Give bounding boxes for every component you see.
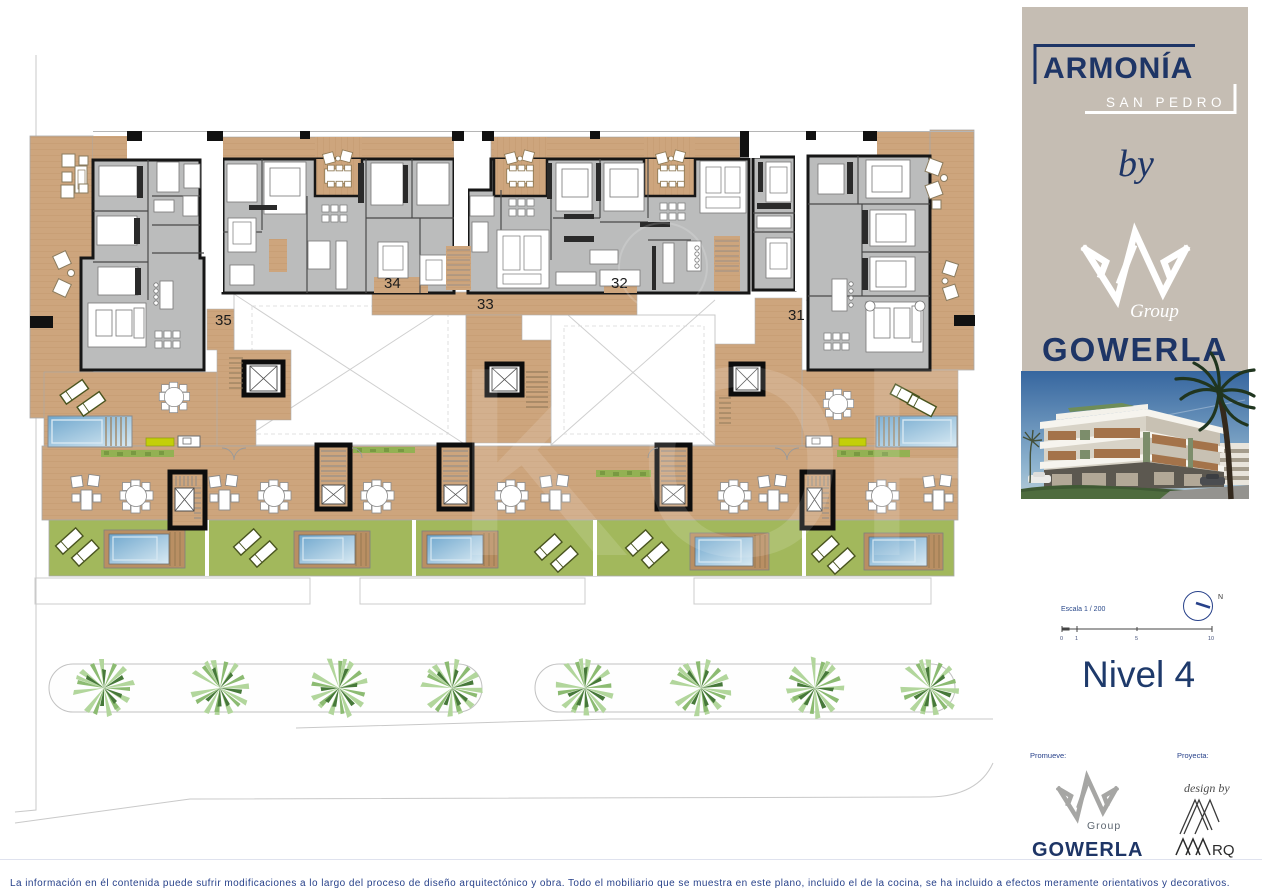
svg-text:35: 35 — [215, 312, 232, 329]
svg-text:design by: design by — [1184, 781, 1230, 795]
svg-text:Group: Group — [1130, 301, 1179, 322]
svg-text:5: 5 — [1135, 636, 1138, 642]
svg-text:Proyecta:: Proyecta: — [1177, 751, 1209, 760]
svg-text:RQ: RQ — [1212, 842, 1235, 859]
svg-text:1: 1 — [1075, 636, 1078, 642]
svg-text:Group: Group — [1087, 820, 1121, 832]
svg-text:33: 33 — [477, 296, 494, 313]
svg-text:10: 10 — [1208, 636, 1214, 642]
svg-text:Escala 1 / 200: Escala 1 / 200 — [1061, 606, 1105, 613]
svg-text:0: 0 — [1060, 636, 1063, 642]
svg-text:La información en él contenida: La información en él contenida puede suf… — [10, 878, 1230, 889]
svg-text:by: by — [1118, 143, 1154, 185]
svg-text:SAN PEDRO: SAN PEDRO — [1106, 95, 1226, 110]
svg-text:GOWERLA: GOWERLA — [1032, 839, 1143, 861]
svg-text:N: N — [1218, 594, 1223, 601]
svg-text:ARMONÍA: ARMONÍA — [1043, 51, 1193, 85]
svg-text:Promueve:: Promueve: — [1030, 751, 1066, 760]
svg-text:GOWERLA: GOWERLA — [1042, 331, 1228, 368]
svg-text:34: 34 — [384, 275, 401, 292]
svg-text:Nivel 4: Nivel 4 — [1082, 654, 1195, 695]
